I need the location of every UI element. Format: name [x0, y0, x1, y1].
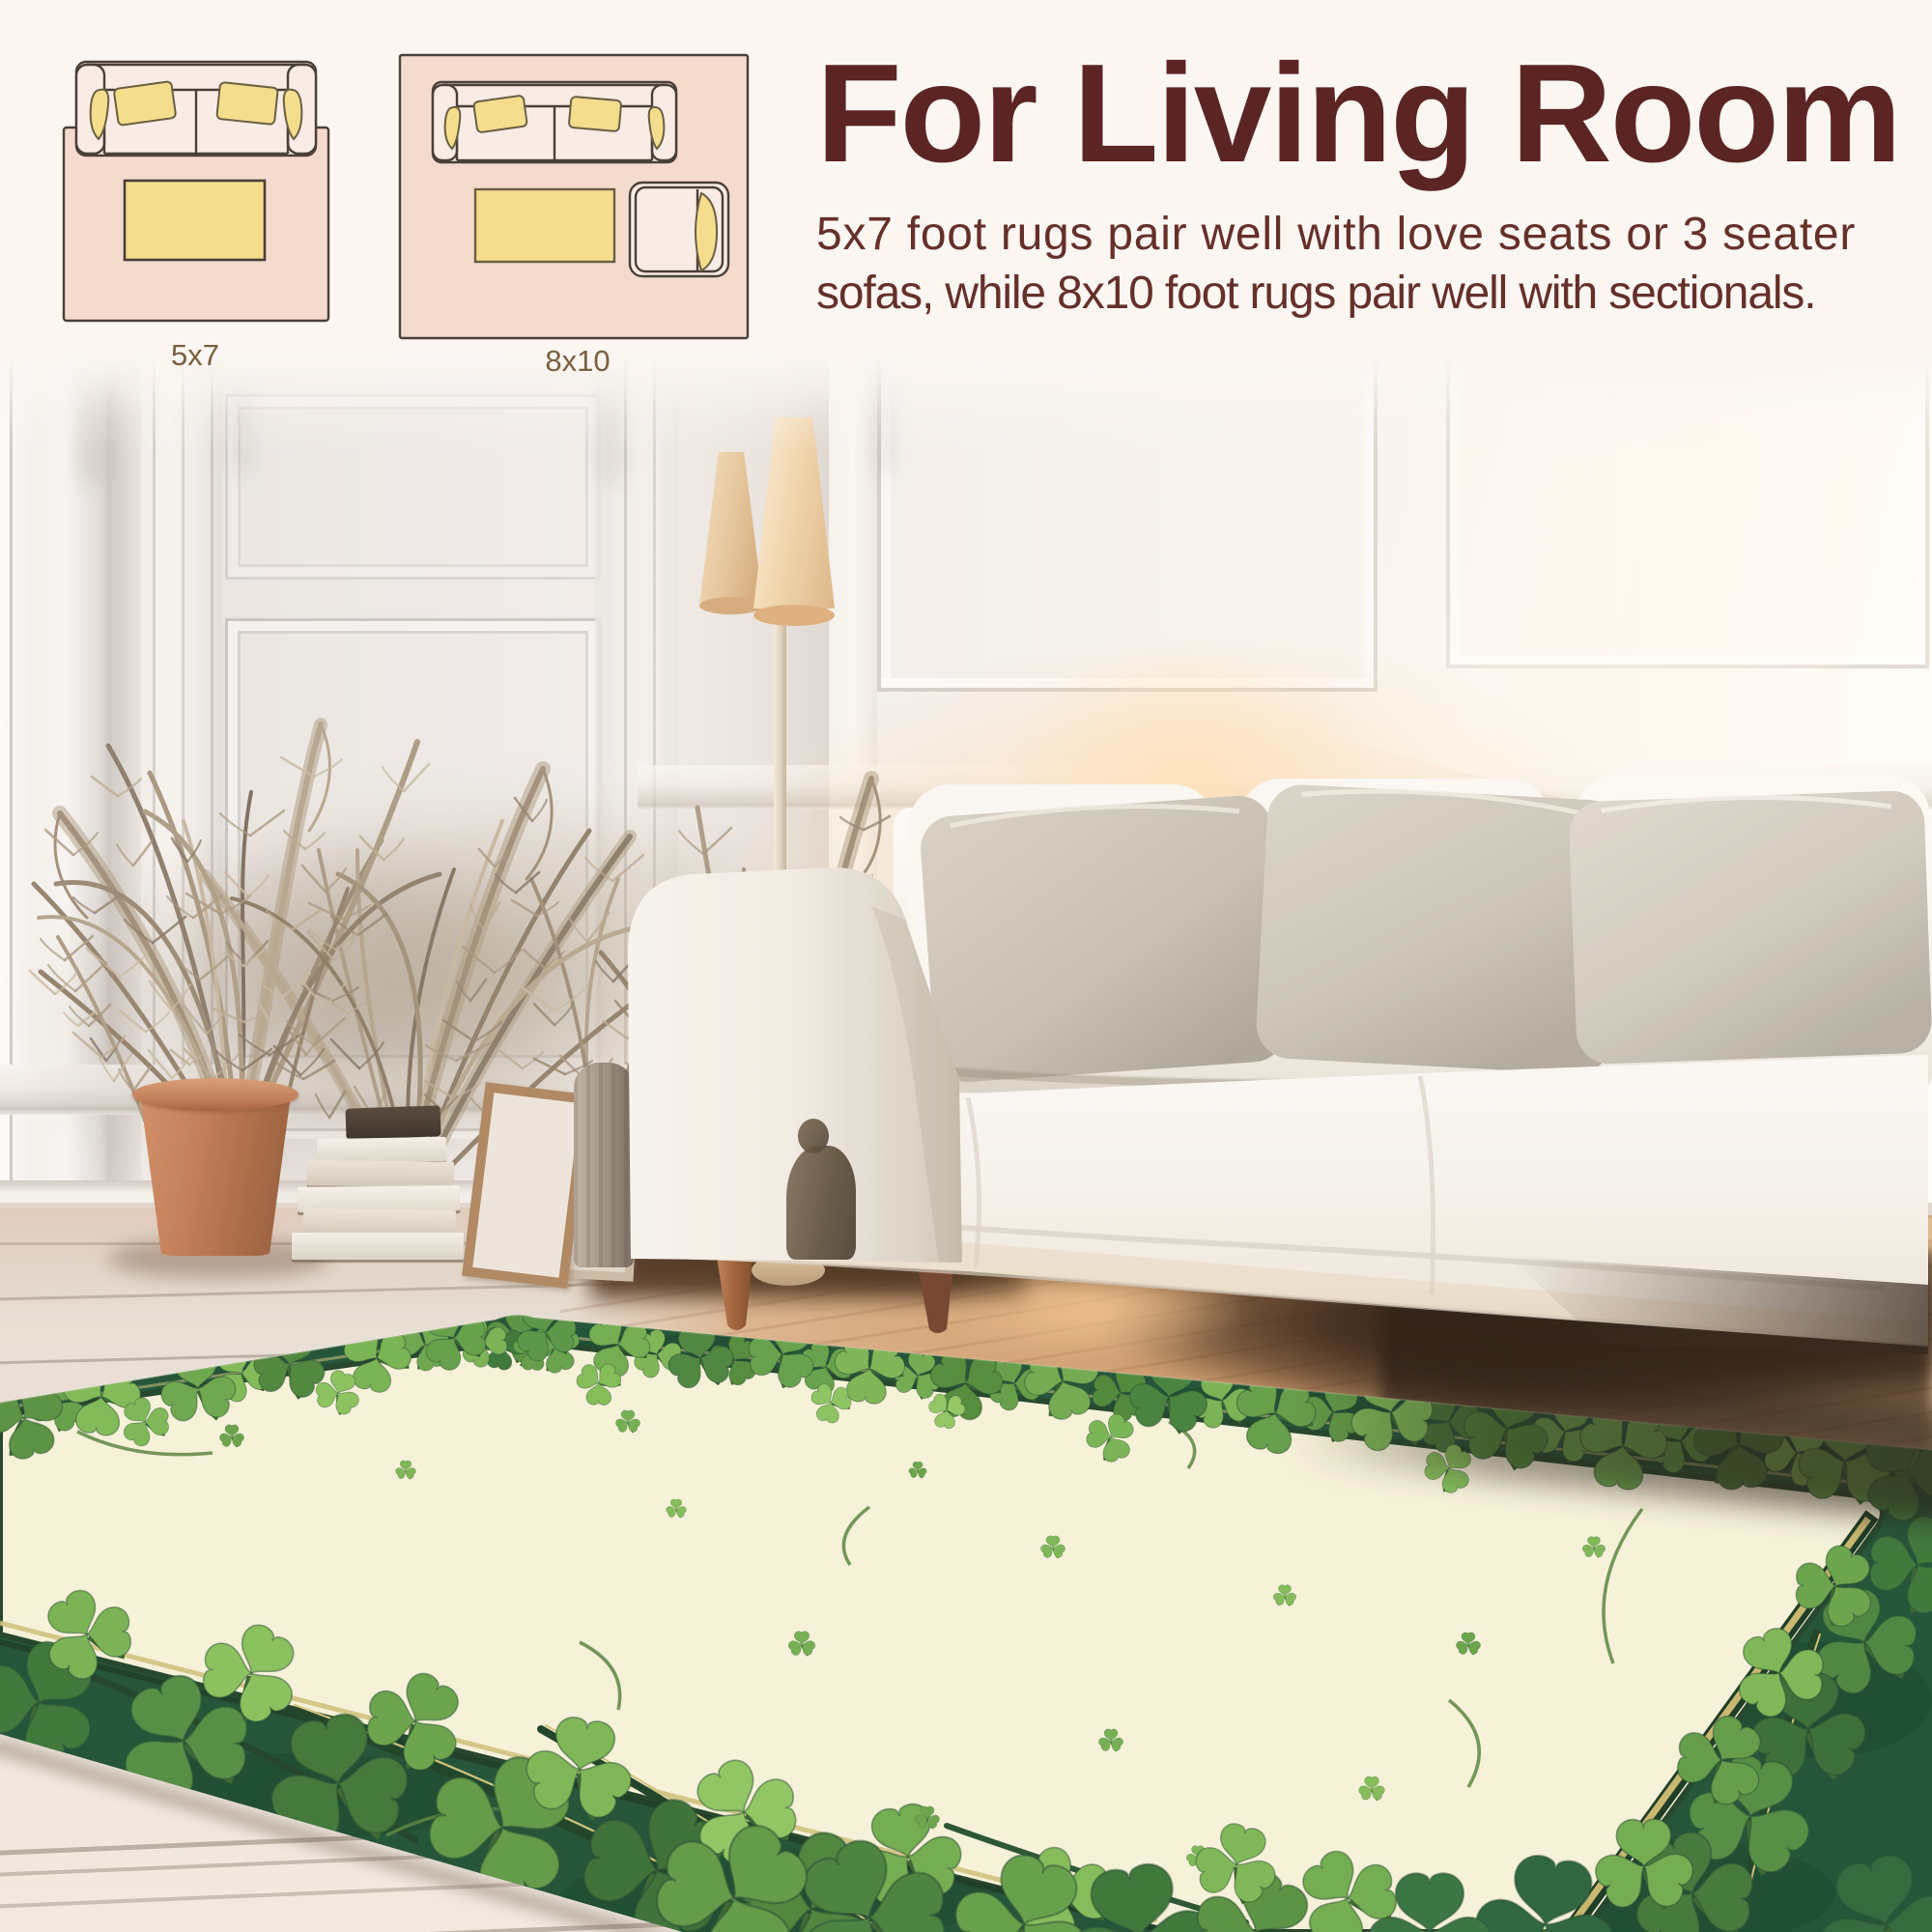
svg-text:8x10: 8x10 [545, 344, 610, 378]
svg-text:5x7: 5x7 [171, 338, 219, 372]
